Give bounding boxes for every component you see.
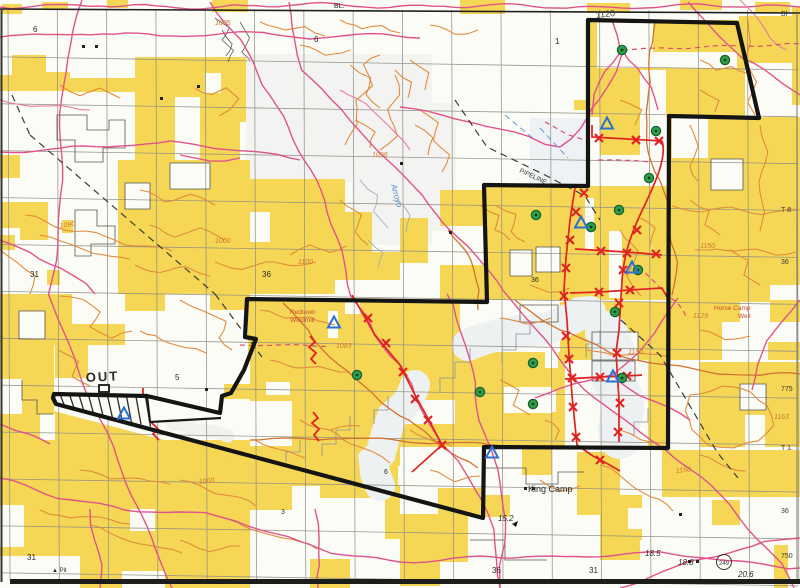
svg-text:6: 6 [314,35,319,44]
svg-text:775: 775 [781,386,793,393]
svg-text:15.2: 15.2 [498,514,514,523]
svg-text:18.8: 18.8 [678,558,694,567]
svg-text:31: 31 [27,553,36,562]
svg-text:Bl: Bl [781,11,788,18]
svg-text:T 8: T 8 [781,207,791,214]
svg-text:36: 36 [781,508,789,515]
svg-text:King Camp: King Camp [528,484,573,494]
svg-text:1150: 1150 [628,349,643,356]
svg-text:36: 36 [262,270,271,279]
svg-text:18.5: 18.5 [645,549,661,558]
svg-text:1100: 1100 [298,259,313,266]
svg-text:20.6: 20.6 [737,570,754,579]
svg-text:750: 750 [781,553,793,560]
svg-text:31: 31 [589,566,598,575]
svg-text:1083: 1083 [336,343,352,350]
svg-text:6: 6 [384,469,388,476]
svg-text:1098: 1098 [372,152,388,159]
svg-text:249: 249 [719,561,730,567]
svg-text:Horse Camp: Horse Camp [714,305,751,312]
svg-text:36: 36 [531,277,539,284]
svg-text:Windmill: Windmill [290,317,315,324]
svg-text:BL.: BL. [334,3,345,10]
svg-text:1163: 1163 [774,414,789,421]
svg-text:1000: 1000 [215,238,231,245]
svg-text:6: 6 [33,25,38,34]
svg-text:1: 1 [555,37,560,46]
svg-text:5: 5 [175,373,180,382]
svg-text:1150: 1150 [700,243,715,250]
svg-text:1129: 1129 [693,313,708,320]
svg-text:Redtown: Redtown [290,309,316,316]
svg-text:T 1.: T 1. [781,445,793,452]
svg-text:31: 31 [30,270,39,279]
svg-text:3: 3 [281,509,285,516]
svg-text:OUT: OUT [85,368,119,385]
svg-text:36: 36 [492,566,501,575]
svg-text:36: 36 [781,259,789,266]
svg-text:▲ Pit: ▲ Pit [52,568,67,574]
svg-text:1120: 1120 [595,8,615,20]
svg-text:Well: Well [738,313,751,320]
svg-text:1005: 1005 [215,20,231,27]
